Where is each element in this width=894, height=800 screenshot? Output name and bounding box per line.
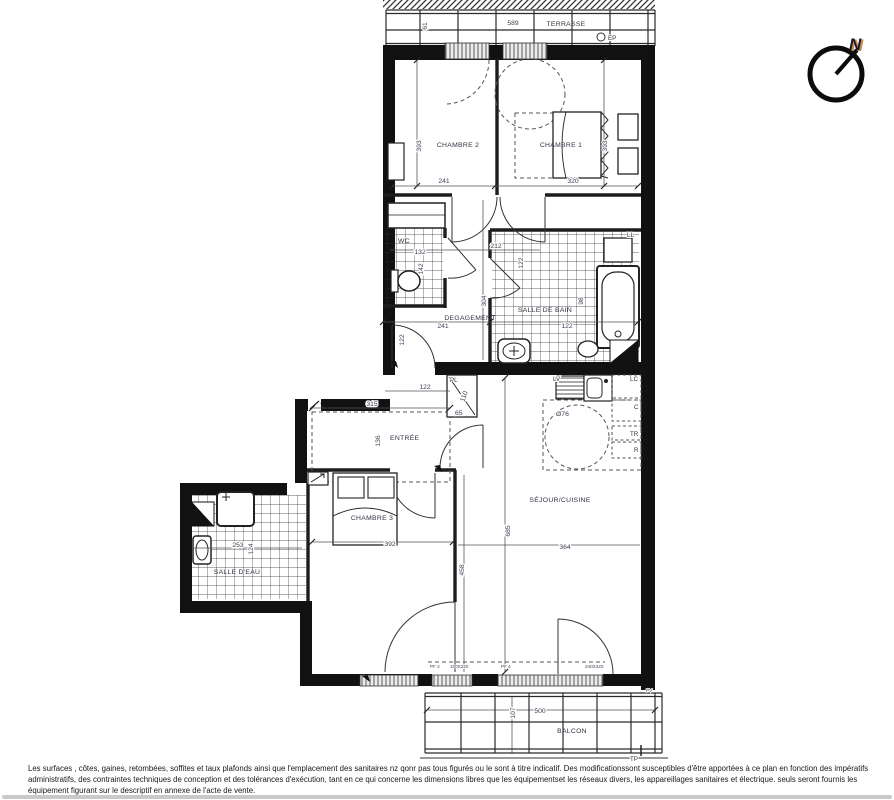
north-compass: N N [810,35,864,100]
wc-width-dim: 132 [414,249,426,256]
balcony-depth-dim: 107 [510,707,517,719]
toilet-tank [391,270,398,292]
unit-tr-label: TR [630,431,639,438]
sejour-label: SÉJOUR/CUISINE [529,495,590,504]
north-label: N [849,35,862,54]
salle-de-bain-width-dim: 122 [561,323,573,330]
ep-drain-icon [597,33,605,41]
balcony-label: BALCON [557,728,587,735]
ep-marker-label: EP [608,35,616,42]
window-tags: PF 2 100X220 PF 4 240X220 [430,664,604,669]
unit-c-label: C [634,404,639,411]
chambre2-depth-dim: 393 [416,140,423,152]
tp-marker: TP [630,756,638,763]
kitchen-turning-circle [545,405,609,469]
electrical-box [308,472,328,485]
terrace-width-dim: 589 [507,20,519,27]
pf2-tag: PF 2 [430,664,440,669]
pf4-tag: PF 4 [501,664,511,669]
balcony: 500 107 BALCON TP PV [420,688,668,763]
washing-machine [604,238,632,262]
chambre1-width-dim: 320 [567,178,579,185]
disclaimer-line2: administratifs, des contraintes techniqu… [28,775,857,784]
salle-de-bain-label: SALLE DE BAIN [518,307,572,314]
entree-width-dim: 315 [366,401,378,408]
wardrobe-chambre2 [388,143,404,180]
bottom-scroll-bar[interactable] [2,795,892,799]
window-sejour-2 [498,675,603,686]
chambre3-depth-dim: 458 [459,564,466,576]
closet: PL 110 65 [447,375,477,417]
terrace-label: TERRASSE [546,21,585,28]
kitchen-fixtures: LV LC C TR R Ø76 [553,375,641,458]
chambre1-depth-dim: 393 [602,140,609,152]
chambre2-width-dim: 241 [438,178,450,185]
wc-label: WC [398,238,410,245]
door-entree-sejour [440,425,483,468]
turning-circle-dim: Ø76 [556,411,569,418]
terrace-hatch-band [383,0,655,9]
pf4-size-tag: 240X220 [585,664,604,669]
pf2-size-tag: 100X220 [450,664,469,669]
unit-lc-label: LC [630,376,638,383]
entree-passage-dim: 122 [419,384,431,391]
sejour-width-dim: 364 [559,544,571,551]
entree-label: ENTRÉE [390,433,420,442]
degagement-width-dim: 241 [437,323,449,330]
window-chambre1 [503,43,547,59]
wc-floor [385,228,443,306]
chambre1-label: CHAMBRE 1 [540,142,582,149]
chambre2-label: CHAMBRE 2 [437,142,479,149]
pv-marker: PV [646,688,653,693]
degagement-depth-dim: 304 [481,295,488,307]
unit-r-label: R [634,447,639,454]
salle-deau-label: SALLE D'EAU [214,569,261,576]
window-chambre2 [445,43,489,59]
door-122-dim-a: 122 [518,257,525,269]
door-wc [448,238,476,278]
bidet [578,341,598,357]
closet-width-dim: 65 [455,410,463,417]
terrace-depth-dim: 61 [422,22,429,30]
dishwasher-label: LV [553,376,561,383]
entree-depth-dim: 136 [375,435,382,447]
washer-label: LL [627,232,634,239]
salle-deau-width-dim: 253 [232,542,244,549]
bed-chambre3 [333,473,397,545]
wc-depth-dim: 142 [418,263,425,275]
wc-shelf [388,203,445,228]
floor-plan-drawing: 589 TERRASSE 61 EP [0,0,894,800]
swing-window-chambre2 [445,60,489,104]
terrace: 589 TERRASSE 61 EP [383,0,655,46]
bathtub-dim: 98 [578,297,585,305]
dishwasher [556,376,584,399]
window-sejour-1 [432,675,472,686]
degagement-label: DEGAGEMENT [444,315,495,322]
closet-label: PL [450,377,458,384]
disclaimer-line1: Les surfaces , côtes, gaines, retombées,… [28,764,868,773]
chambre3-width-dim: 392 [384,541,396,548]
disclaimer-line3: équipement figurant sur le descriptif en… [28,786,255,795]
floor-plan-page: 589 TERRASSE 61 EP [0,0,894,800]
toilet-icon [398,271,420,291]
balcony-width-dim: 500 [534,708,546,715]
disclaimer: Les surfaces , côtes, gaines, retombées,… [28,764,868,795]
door-122-dim-b: 122 [399,334,406,346]
chambre3-label: CHAMBRE 3 [351,515,393,522]
passage-212-dim: 212 [490,243,502,250]
salle-deau-depth-dim: 124 [248,543,255,555]
sejour-depth-dim: 685 [505,525,512,537]
